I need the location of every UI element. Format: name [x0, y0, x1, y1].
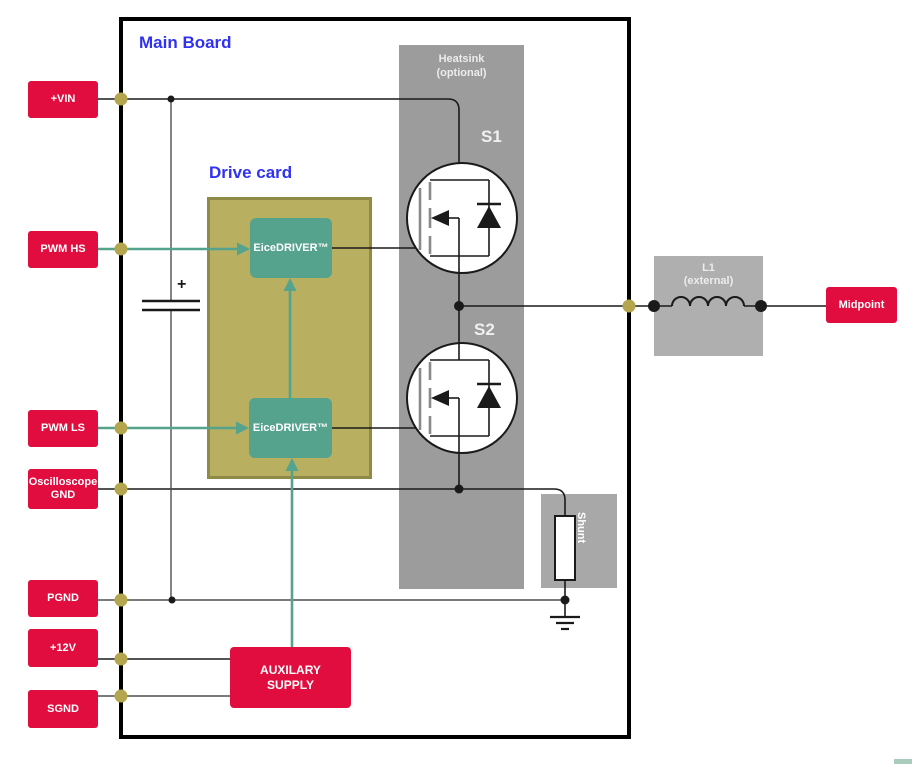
capacitor-plus-sign: +: [177, 276, 186, 294]
wire-source-to-shunt: [459, 489, 565, 516]
main-board-title: Main Board: [139, 33, 232, 53]
terminal-midpoint: Midpoint: [826, 287, 897, 323]
arrowhead-aux: [286, 458, 299, 471]
terminal-pwm-hs: PWM HS: [28, 231, 98, 268]
eicedriver-hs-block: EiceDRIVER™: [250, 218, 332, 278]
terminal-sgnd: SGND: [28, 690, 98, 728]
inductor-terminal-dot: [755, 300, 767, 312]
drive-card-title: Drive card: [209, 163, 292, 183]
terminal-oscilloscope-gnd: Oscilloscope GND: [28, 469, 98, 509]
heatsink-label: Heatsink (optional): [399, 52, 524, 80]
auxiliary-supply-block: AUXILARY SUPPLY: [230, 647, 351, 708]
inductor-symbol: [648, 297, 767, 312]
terminal-12v: +12V: [28, 629, 98, 667]
corner-strip-decoration: [894, 759, 912, 764]
ground-icon: [550, 617, 580, 629]
block-diagram: Main Board Drive card Heatsink (optional…: [0, 0, 912, 764]
arrowhead-pwm-hs: [237, 243, 250, 256]
switch-s1-label: S1: [481, 127, 502, 147]
switch-s2-label: S2: [474, 320, 495, 340]
main-board-border: [121, 19, 629, 737]
arrowhead-driver: [284, 278, 297, 291]
inductor-label: L1 (external): [654, 262, 763, 288]
schematic-wiring: [0, 0, 912, 764]
mosfet-s1-symbol: [407, 163, 517, 306]
terminal-vin: +VIN: [28, 81, 98, 118]
terminal-pgnd: PGND: [28, 580, 98, 617]
shunt-label: Shunt: [575, 512, 587, 574]
mosfet-s2-symbol: [407, 306, 517, 489]
shunt-resistor-symbol: [555, 516, 575, 580]
inductor-terminal-dot: [648, 300, 660, 312]
board-terminal-dots: [115, 93, 636, 703]
arrowhead-pwm-ls: [236, 422, 249, 435]
capacitor-symbol: [142, 301, 200, 310]
terminal-pwm-ls: PWM LS: [28, 410, 98, 447]
eicedriver-ls-block: EiceDRIVER™: [249, 398, 332, 458]
